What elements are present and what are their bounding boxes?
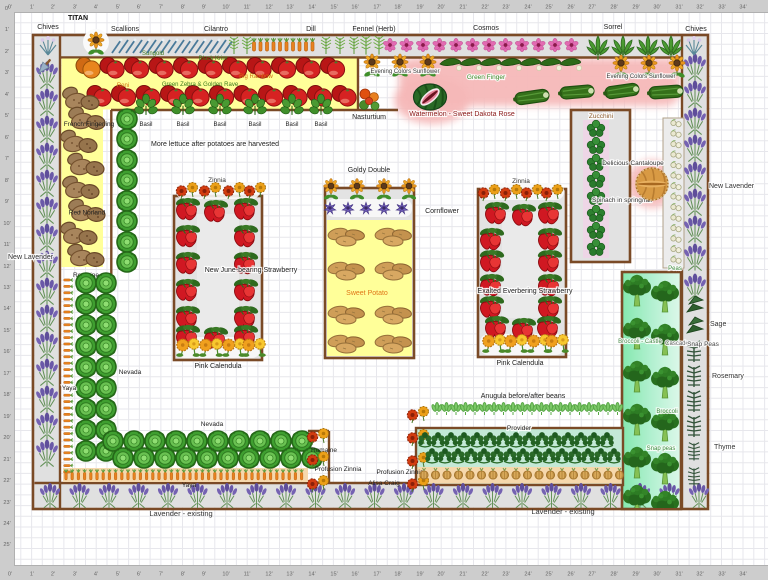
svg-text:32': 32'	[696, 5, 703, 11]
svg-text:Anugula before/after beans: Anugula before/after beans	[481, 393, 566, 400]
svg-text:22': 22'	[481, 5, 488, 11]
svg-text:28': 28'	[610, 5, 617, 11]
svg-text:Watermelon - Sweet Dakota Rose: Watermelon - Sweet Dakota Rose	[409, 111, 515, 118]
svg-text:27': 27'	[588, 572, 595, 578]
svg-text:Pink Calendula: Pink Calendula	[496, 360, 543, 367]
svg-text:12': 12'	[265, 572, 272, 578]
svg-text:33': 33'	[718, 5, 725, 11]
svg-text:34': 34'	[739, 572, 746, 578]
svg-text:25': 25'	[3, 542, 10, 548]
svg-text:Cilantro: Cilantro	[204, 26, 228, 33]
svg-text:Zucchini: Zucchini	[589, 113, 613, 120]
svg-text:1': 1'	[30, 5, 34, 11]
svg-text:24': 24'	[524, 572, 531, 578]
svg-text:16': 16'	[3, 349, 10, 355]
svg-text:Evening Colors Sunflower: Evening Colors Sunflower	[370, 69, 439, 75]
svg-text:Dill: Dill	[306, 26, 316, 33]
svg-text:30': 30'	[653, 5, 660, 11]
svg-text:29': 29'	[632, 572, 639, 578]
svg-text:TITAN: TITAN	[68, 15, 88, 22]
svg-text:29': 29'	[632, 5, 639, 11]
svg-text:26': 26'	[567, 572, 574, 578]
svg-text:6': 6'	[137, 572, 141, 578]
svg-text:7': 7'	[159, 5, 163, 11]
svg-text:32': 32'	[696, 572, 703, 578]
svg-text:6': 6'	[137, 5, 141, 11]
svg-text:Goldy Double: Goldy Double	[348, 167, 391, 174]
svg-text:Profusion Zinnia: Profusion Zinnia	[315, 466, 362, 473]
svg-text:Sweet Potato: Sweet Potato	[346, 290, 388, 297]
svg-text:Cascade: Cascade	[665, 341, 689, 347]
svg-text:4': 4'	[5, 92, 9, 98]
svg-text:0': 0'	[8, 572, 12, 578]
svg-text:18': 18'	[3, 392, 10, 398]
svg-text:Lavender - existing: Lavender - existing	[149, 509, 212, 518]
svg-text:1': 1'	[5, 27, 9, 33]
svg-text:21': 21'	[459, 5, 466, 11]
svg-text:34': 34'	[739, 5, 746, 11]
svg-text:20': 20'	[3, 435, 10, 441]
svg-text:17': 17'	[373, 572, 380, 578]
svg-text:2': 2'	[5, 49, 9, 55]
svg-text:9': 9'	[5, 199, 9, 205]
svg-text:New Lavender: New Lavender	[709, 183, 755, 190]
svg-text:French Fingerling: French Fingerling	[64, 121, 115, 128]
svg-text:24': 24'	[524, 5, 531, 11]
svg-text:5': 5'	[116, 5, 120, 11]
svg-text:8': 8'	[181, 5, 185, 11]
svg-text:1': 1'	[30, 572, 34, 578]
svg-text:Sage: Sage	[710, 321, 726, 328]
svg-text:12': 12'	[265, 5, 272, 11]
svg-text:Red Norland: Red Norland	[69, 210, 106, 217]
svg-text:Basil: Basil	[248, 122, 261, 128]
svg-text:Rosemary: Rosemary	[712, 373, 744, 380]
svg-text:19': 19'	[3, 414, 10, 420]
svg-text:9': 9'	[202, 5, 206, 11]
svg-text:13': 13'	[286, 5, 293, 11]
svg-text:20': 20'	[437, 572, 444, 578]
svg-text:Cosmos: Cosmos	[473, 25, 499, 32]
svg-text:12': 12'	[3, 264, 10, 270]
svg-text:Exalted Everbering Strawberry: Exalted Everbering Strawberry	[478, 288, 573, 295]
svg-text:10': 10'	[3, 221, 10, 227]
svg-text:4': 4'	[94, 572, 98, 578]
svg-text:23': 23'	[502, 572, 509, 578]
svg-text:8': 8'	[5, 178, 9, 184]
svg-text:33': 33'	[718, 572, 725, 578]
svg-text:Delicious Cantaloupe: Delicious Cantaloupe	[602, 160, 664, 167]
svg-text:15': 15'	[330, 572, 337, 578]
svg-text:13': 13'	[3, 285, 10, 291]
svg-text:18': 18'	[394, 572, 401, 578]
svg-text:Big Rainbow: Big Rainbow	[239, 74, 273, 80]
svg-text:New June-bearing Strawberry: New June-bearing Strawberry	[205, 267, 298, 274]
svg-text:19': 19'	[416, 572, 423, 578]
svg-text:Thyme: Thyme	[714, 444, 736, 451]
svg-text:Basil: Basil	[176, 122, 189, 128]
svg-text:Profusion Zinnia: Profusion Zinnia	[377, 469, 424, 476]
svg-text:31': 31'	[675, 572, 682, 578]
svg-text:Sorrel: Sorrel	[604, 24, 623, 31]
svg-text:18': 18'	[394, 5, 401, 11]
svg-text:11': 11'	[244, 5, 251, 11]
svg-text:Romaine: Romaine	[311, 447, 337, 454]
svg-text:Pink Calendula: Pink Calendula	[194, 363, 241, 370]
svg-text:14': 14'	[308, 572, 315, 578]
svg-text:28': 28'	[610, 572, 617, 578]
svg-text:25': 25'	[545, 5, 552, 11]
svg-text:30': 30'	[653, 572, 660, 578]
svg-text:9': 9'	[202, 572, 206, 578]
svg-text:26': 26'	[567, 5, 574, 11]
svg-text:Yaya: Yaya	[182, 482, 197, 489]
svg-text:21': 21'	[459, 572, 466, 578]
svg-text:19': 19'	[416, 5, 423, 11]
svg-text:Fennel (Herb): Fennel (Herb)	[352, 26, 395, 33]
svg-text:27': 27'	[588, 5, 595, 11]
svg-text:15': 15'	[330, 5, 337, 11]
svg-text:Provider: Provider	[507, 425, 532, 432]
svg-text:11': 11'	[244, 572, 251, 578]
svg-text:Evening Colors Sunflower: Evening Colors Sunflower	[606, 74, 675, 80]
svg-text:Snap Peas: Snap Peas	[687, 341, 720, 348]
svg-text:Sungold: Sungold	[142, 51, 164, 57]
svg-text:17': 17'	[373, 5, 380, 11]
svg-text:22': 22'	[3, 478, 10, 484]
svg-text:6': 6'	[5, 135, 9, 141]
svg-text:14': 14'	[3, 306, 10, 312]
svg-text:13': 13'	[286, 572, 293, 578]
svg-text:5': 5'	[5, 113, 9, 119]
svg-text:Green Zebra & Golden Rave: Green Zebra & Golden Rave	[162, 82, 239, 88]
svg-text:17': 17'	[3, 371, 10, 377]
svg-text:Alisa Craig: Alisa Craig	[368, 480, 400, 487]
svg-text:0': 0'	[5, 6, 9, 12]
svg-text:More lettuce after potatoes ar: More lettuce after potatoes are harveste…	[151, 141, 279, 148]
svg-text:3': 3'	[73, 572, 77, 578]
svg-text:Nevada: Nevada	[119, 369, 142, 376]
svg-text:Basil: Basil	[285, 122, 298, 128]
svg-text:5': 5'	[116, 572, 120, 578]
svg-text:24': 24'	[3, 521, 10, 527]
svg-text:4': 4'	[94, 5, 98, 11]
svg-text:Black Krim: Black Krim	[199, 56, 228, 62]
svg-text:Basil: Basil	[314, 122, 327, 128]
svg-text:2': 2'	[51, 5, 55, 11]
svg-text:New Lavender: New Lavender	[8, 254, 54, 261]
svg-text:20': 20'	[437, 5, 444, 11]
svg-text:23': 23'	[502, 5, 509, 11]
svg-text:3': 3'	[5, 70, 9, 76]
svg-text:Cornflower: Cornflower	[425, 208, 460, 215]
svg-text:Green Finger: Green Finger	[467, 74, 506, 81]
svg-text:Basil: Basil	[139, 122, 152, 128]
svg-text:22': 22'	[481, 572, 488, 578]
svg-text:7': 7'	[159, 572, 163, 578]
svg-text:Chives: Chives	[685, 26, 707, 33]
svg-text:10': 10'	[222, 5, 229, 11]
svg-text:Chives: Chives	[37, 24, 59, 31]
svg-text:Lavender - existing: Lavender - existing	[531, 507, 594, 516]
svg-text:16': 16'	[351, 572, 358, 578]
svg-text:Nevada: Nevada	[201, 421, 224, 428]
svg-text:Roni: Roni	[117, 83, 129, 89]
svg-text:11': 11'	[4, 242, 11, 248]
svg-text:21': 21'	[3, 457, 10, 463]
svg-text:Zinnia: Zinnia	[512, 178, 530, 185]
svg-text:14': 14'	[308, 5, 315, 11]
svg-text:31': 31'	[675, 5, 682, 11]
svg-text:Broccoli - Castle: Broccoli - Castle	[618, 339, 662, 345]
svg-text:3': 3'	[73, 5, 77, 11]
svg-text:8': 8'	[181, 572, 185, 578]
svg-text:7': 7'	[5, 156, 9, 162]
svg-text:25': 25'	[545, 572, 552, 578]
svg-text:16': 16'	[351, 5, 358, 11]
svg-text:Snap peas: Snap peas	[647, 446, 676, 452]
svg-text:23': 23'	[3, 500, 10, 506]
svg-text:Yaya: Yaya	[62, 385, 77, 392]
svg-text:15': 15'	[3, 328, 10, 334]
svg-text:Scallions: Scallions	[111, 26, 140, 33]
svg-text:Nasturtium: Nasturtium	[352, 114, 386, 121]
svg-text:Broccoli: Broccoli	[656, 409, 677, 415]
svg-text:2': 2'	[51, 572, 55, 578]
svg-text:10': 10'	[222, 572, 229, 578]
svg-text:Peas: Peas	[668, 266, 682, 272]
svg-text:Basil: Basil	[213, 122, 226, 128]
